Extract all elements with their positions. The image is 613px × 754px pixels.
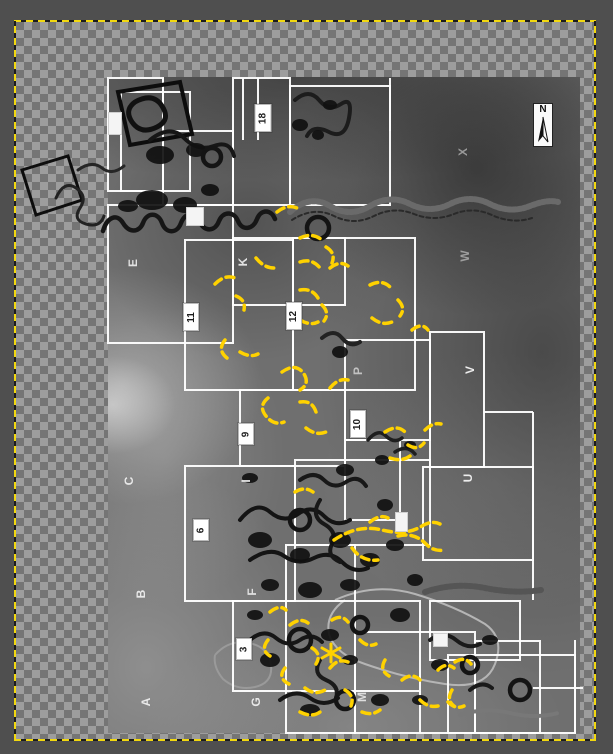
grid-letter-label-a: A xyxy=(139,698,153,707)
layer-boundary-right xyxy=(594,20,596,741)
grid-number-label-11: 11 xyxy=(183,303,199,331)
grid-number-text: 9 xyxy=(241,431,252,437)
grid-letter-label-i: I xyxy=(239,479,253,482)
layer-boundary-bottom xyxy=(14,739,596,741)
grid-letter-label-w: W xyxy=(458,250,472,261)
grid-number-text: 6 xyxy=(196,527,207,533)
grid-number-text: 3 xyxy=(239,646,250,652)
grid-number-label-18: 18 xyxy=(255,104,272,132)
grid-letter-label-x: X xyxy=(456,148,470,156)
grid-letter-label-g: G xyxy=(249,697,263,706)
grid-letter-label-f: F xyxy=(245,588,259,595)
artwork-photo-layer xyxy=(108,77,580,733)
grid-number-label-6: 6 xyxy=(193,519,209,541)
layer-boundary-left xyxy=(14,20,16,741)
blank-label-box xyxy=(395,512,408,532)
grid-letter-label-k: K xyxy=(236,258,250,267)
grid-letter-label-p: P xyxy=(351,367,365,375)
north-arrow: N xyxy=(533,103,553,147)
grid-letter-label-b: B xyxy=(134,590,148,599)
grid-letter-label-m: M xyxy=(355,692,369,702)
grid-number-text: 10 xyxy=(353,418,364,429)
north-arrow-label: N xyxy=(539,104,546,116)
grid-letter-label-c: C xyxy=(122,477,136,486)
grid-number-label-12: 12 xyxy=(286,302,302,330)
blank-label-box xyxy=(433,633,448,647)
blank-label-box xyxy=(186,207,204,226)
north-arrow-icon xyxy=(536,116,550,144)
grid-number-text: 11 xyxy=(185,312,196,323)
grid-number-text: 12 xyxy=(289,310,300,321)
grid-letter-label-u: U xyxy=(461,474,475,483)
grid-number-label-9: 9 xyxy=(238,423,254,445)
blank-label-box xyxy=(108,112,122,135)
grid-number-text: 18 xyxy=(258,112,269,123)
layer-boundary-top xyxy=(14,20,596,22)
grid-number-label-3: 3 xyxy=(236,638,252,660)
grid-letter-label-e: E xyxy=(126,259,140,267)
grid-number-label-10: 10 xyxy=(350,410,366,438)
grid-letter-label-v: V xyxy=(463,366,477,374)
image-editor-canvas[interactable]: N EKXWVUPCIBFAGM18111291063 xyxy=(0,0,613,754)
